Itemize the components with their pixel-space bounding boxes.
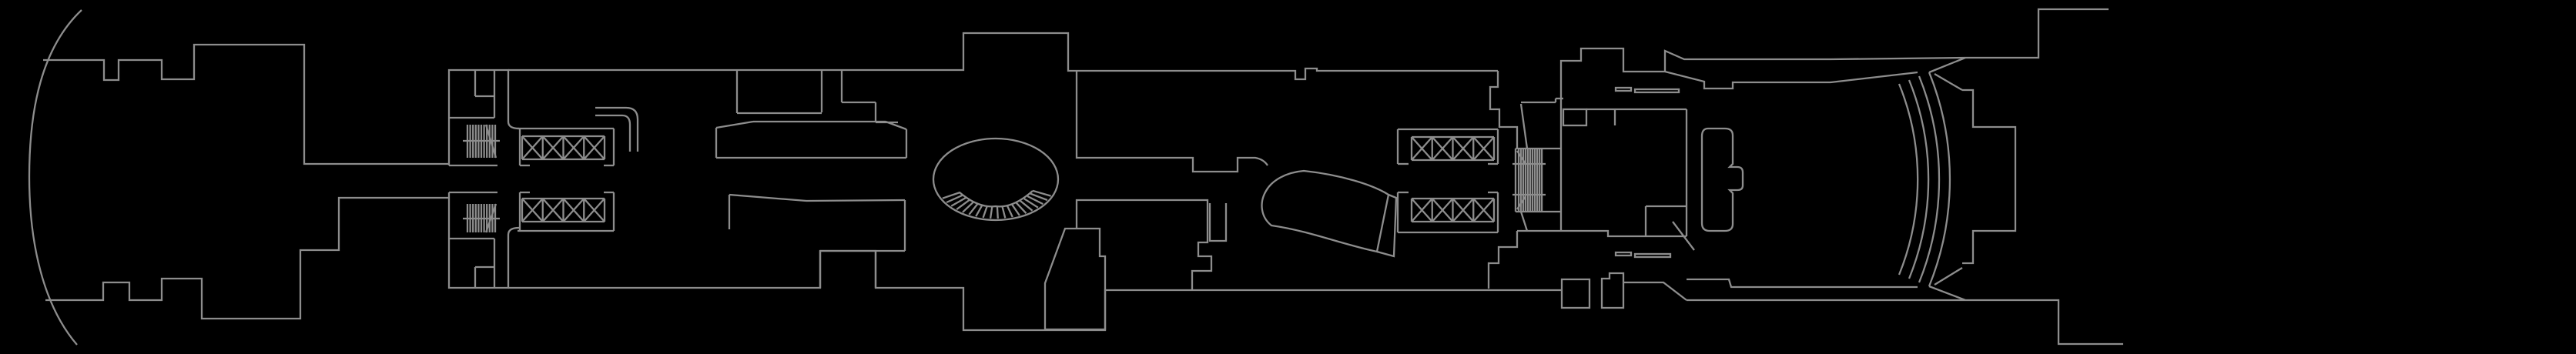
- lounge-piano-shape: [1262, 171, 1388, 252]
- aft-room-lower: [1077, 200, 1211, 290]
- stage-trapezoid: [1045, 229, 1105, 329]
- bottom-tab-forward: [1562, 279, 1589, 308]
- stern-platform: [1962, 90, 2015, 263]
- central-stair-rooms: [1521, 99, 1694, 250]
- hull-bottom-aft-outer: [1687, 300, 2123, 344]
- vent-bar-top-1: [1616, 88, 1631, 91]
- aft-room-lower-channel: [1210, 203, 1226, 241]
- stern-links: [1929, 58, 1965, 300]
- escalator-fwd-upper: [522, 136, 605, 159]
- hull-top-aft-inner: [1561, 48, 1918, 99]
- midship-room-upper: [716, 70, 906, 158]
- central-stair-closet: [1563, 109, 1586, 125]
- aft-room-upper: [1077, 71, 1268, 172]
- hull-top-mid: [508, 33, 1498, 79]
- hull-top-forward: [43, 45, 449, 164]
- vent-bar-bottom-2: [1635, 254, 1670, 257]
- bent-corridor-rail-outer: [595, 108, 638, 152]
- hull-top-aft-outer: [1665, 9, 2109, 72]
- deck-plan-canvas: [0, 0, 2576, 354]
- hull-bottom-mid: [508, 251, 1562, 330]
- corridor-wall-aft-lower: [1517, 231, 1687, 236]
- top-stair-recess: [1490, 71, 1517, 149]
- vent-bar-bottom-1: [1616, 252, 1631, 255]
- hull-bottom-forward: [45, 198, 450, 319]
- bottom-tab-aft: [1602, 273, 1623, 308]
- escalator-aft-upper: [1412, 137, 1494, 160]
- pool-shape: [1702, 129, 1743, 231]
- escalator-fwd-lower: [522, 199, 605, 222]
- bottom-stair-recess: [1489, 231, 1517, 289]
- bent-corridor-rail-inner: [595, 115, 630, 152]
- stern-tier-arcs: [1899, 72, 1950, 286]
- escalator-aft-lower: [1412, 199, 1494, 222]
- atrium-fan-stair-treads: [943, 191, 1051, 219]
- hull-bottom-aft-inner: [1623, 279, 1918, 300]
- midship-room-lower: [729, 195, 905, 288]
- deck-plan-stage: [0, 0, 2576, 354]
- vent-bar-top-2: [1635, 89, 1679, 92]
- atrium-oval: [933, 139, 1058, 220]
